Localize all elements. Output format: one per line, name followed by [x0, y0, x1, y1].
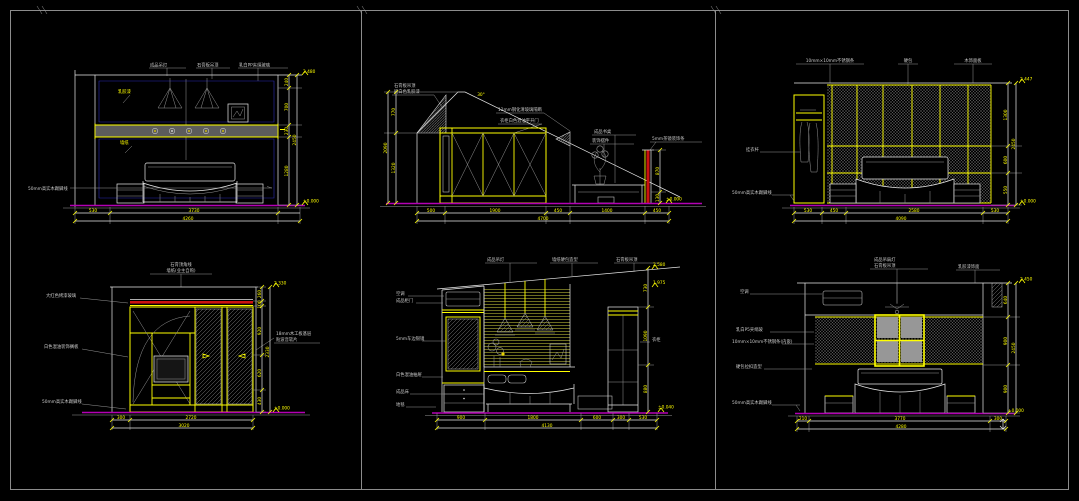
dim-total: 4130 [542, 423, 553, 429]
annotation: 衣柜 [652, 336, 661, 343]
elevation-2: 石膏板吊顶 刷白色乳胶漆 30° 12mm钢化清玻璃隔断 衣柜白色混油平开门 成… [365, 10, 710, 255]
annotation: 衣柜白色混油平开门 [500, 117, 539, 124]
annotation: 12mm钢化清玻璃隔断 [498, 106, 543, 113]
cad-canvas: { "window": { "background": "#000000", "… [0, 0, 1079, 501]
p4-bottom-dimension-chain: 300 2720 3020 [110, 415, 255, 430]
dim-value: 260 [257, 290, 263, 298]
annotation: 地毯 [396, 401, 405, 408]
elevation-marker: ±0.000 [274, 406, 290, 412]
p1-wall: 乳胶漆 墙纸 [75, 70, 302, 207]
dim-value: 100 [257, 300, 263, 308]
annotation: 乳胶漆饰面 [958, 263, 980, 270]
dim-value: 620 [257, 369, 263, 377]
dim-value: 2720 [186, 415, 197, 421]
annotation: 墙纸 [120, 139, 129, 146]
p6-bed [855, 369, 945, 413]
p2-wardrobe [440, 128, 546, 203]
dim-value: 1400 [602, 208, 613, 214]
dim-value: 2580 [909, 208, 920, 214]
dim-total: 2330 [265, 346, 271, 357]
dim-total: 2450 [1011, 342, 1017, 353]
p3-leader-labels: 10mm×10mm不锈钢条 硬包 木饰面板 [796, 57, 992, 84]
annotation: 硬包 [904, 57, 913, 64]
elevation-marker: ±0.000 [666, 197, 682, 203]
annotation: 乳白PP夹绢玻璃 [239, 62, 271, 69]
dim-value: 3730 [189, 208, 200, 214]
annotation: 装饰摆件 [592, 137, 610, 144]
dim-total: 2450 [292, 134, 298, 145]
dim-value: 1300 [1003, 109, 1009, 120]
dim-value: 450 [653, 208, 661, 214]
elevation-6: 成品吊扇灯 石膏板吊顶 乳胶漆饰面 空调 [720, 255, 1070, 495]
p1-bed [143, 163, 237, 202]
dim-value: 530 [804, 208, 812, 214]
dim-total: 4700 [538, 216, 549, 222]
gable-hatch [417, 95, 446, 133]
p1-right-dimension-chain: 240 700 230 1280 2450 2.480 ±0.000 [278, 69, 319, 207]
dim-total: 4090 [896, 216, 907, 222]
dim-total: 4260 [183, 216, 194, 222]
p2-right-dimension-chain: 870 130 ±0.000 [651, 148, 682, 205]
p6-right-dimension-chain: 640 900 900 2450 2.450 ±0.000 [983, 277, 1033, 430]
p6-left-labels: 空调 乳白P5夹绢玻 10mm×10mm不锈钢条(内嵌) 硬包拉扣造型 50mm… [732, 288, 822, 411]
dim-value: 1280 [284, 165, 290, 176]
annotation: 大红色烤漆玻璃 [46, 292, 77, 299]
elevation-5: 成品吊灯 墙纸硬包造型 石膏板吊顶 [365, 255, 710, 495]
annotation: 石膏板吊顶 [874, 262, 896, 269]
dim-value: 210 [799, 416, 807, 422]
elevation-marker: 2.330 [274, 281, 287, 287]
dim-value: 730 [643, 284, 649, 292]
p2-bottom-dimension-chain: 500 1900 450 1400 450 4700 [415, 206, 671, 224]
annotation: 石膏板吊顶 [394, 82, 416, 89]
dim-value: 640 [1003, 296, 1009, 304]
annotation: 50mm高实木踢脚线 [28, 185, 68, 192]
dim-value: 500 [427, 208, 435, 214]
annotation: 50mm高实木踢脚线 [732, 399, 772, 406]
elevation-1: 成品吊灯 石膏板吊顶 乳白PP夹绢玻璃 乳胶漆 墙纸 [15, 10, 360, 255]
elevation-4: 石膏顶角线 墙纸(业主自购) 大红色烤漆玻璃 白色混油装饰搁板 50mm高实木踢… [15, 255, 360, 495]
dim-value: 300 [994, 416, 1002, 422]
p1-bottom-dimension-chain: 530 3730 4260 [73, 207, 302, 224]
p2-structure [417, 92, 680, 203]
dim-value: 770 [391, 108, 397, 116]
p5-dresser-unit [442, 286, 484, 412]
dim-value: 300 [117, 415, 125, 421]
elevation-marker: 2.450 [1020, 277, 1033, 283]
dim-value: 920 [257, 327, 263, 335]
p1-skirting-label: 50mm高实木踢脚线 [28, 185, 272, 192]
dim-value: 600 [1003, 156, 1009, 164]
annotation: 5mm茶镜装饰条 [652, 135, 685, 142]
red-glass-strip [130, 301, 253, 304]
dim-value: 900 [1003, 337, 1009, 345]
dim-value: 530 [89, 208, 97, 214]
p4-right-dimension-chain: 260 100 920 620 430 2330 2.330 ±0.000 [253, 281, 290, 415]
p2-mirror-strip [642, 150, 654, 203]
dim-value: 900 [1003, 385, 1009, 393]
p1-spotlight-shelf [95, 124, 285, 140]
bench [578, 396, 612, 409]
dim-total: 2450 [1011, 138, 1017, 149]
p4-sliding-doors [196, 309, 252, 404]
p6-leader-labels: 成品吊扇灯 石膏板吊顶 乳胶漆饰面 [870, 256, 1000, 303]
ceiling-fan-lamp [885, 283, 909, 309]
dim-value: 900 [457, 415, 465, 421]
dim-value: 600 [593, 415, 601, 421]
elevation-marker: ±0.000 [303, 199, 319, 205]
p1-pendant-lamps [158, 78, 219, 108]
elevation-3: 10mm×10mm不锈钢条 硬包 木饰面板 挂衣杆 50mm高实木踢脚线 [720, 10, 1070, 255]
dim-value: 130 [655, 194, 661, 202]
annotation: 挂衣杆 [746, 146, 760, 153]
annotation: 墙纸硬包造型 [552, 256, 578, 263]
dim-value: 450 [554, 208, 562, 214]
annotation: 50mm高实木踢脚线 [732, 189, 772, 196]
hanging-clothes [800, 110, 818, 172]
dim-value: 1900 [490, 208, 501, 214]
annotation: 成品吊灯 [487, 256, 505, 263]
dim-value: 870 [655, 167, 661, 175]
annotation: 木饰面板 [964, 57, 982, 64]
annotation: 成品书桌 [594, 128, 612, 135]
annotation: 成品吊灯 [150, 62, 168, 69]
dim-total: 3020 [179, 423, 190, 429]
dim-value: 230 [284, 127, 290, 135]
elevation-marker: 1.975 [653, 280, 666, 286]
dim-total: 4280 [896, 424, 907, 430]
p4-left-labels: 大红色烤漆玻璃 白色混油装饰搁板 50mm高实木踢脚线 [42, 292, 128, 409]
p4-leader-labels: 石膏顶角线 墙纸(业主自购) [150, 261, 212, 287]
annotation: 成品吊扇灯 [874, 256, 896, 263]
dim-value: 240 [284, 78, 290, 86]
p1-picture-frame [228, 104, 248, 122]
dim-value: 550 [1003, 186, 1009, 194]
dim-value: 1800 [528, 415, 539, 421]
annotation: 石膏板吊顶 [616, 256, 638, 263]
annotation: 石膏顶角线 [170, 261, 192, 268]
annotation: 5mm车边银镜 [396, 335, 425, 342]
p3-left-labels: 挂衣杆 50mm高实木踢脚线 [732, 146, 800, 201]
dim-value: 880 [643, 385, 649, 393]
elevation-marker: 2.580 [653, 262, 666, 268]
p3-wardrobe [794, 95, 824, 203]
annotation: 18mm木工板基层 [276, 330, 312, 337]
mirror [448, 319, 478, 369]
dim-value: 530 [991, 208, 999, 214]
dim-value: 1090 [643, 330, 649, 341]
tv [154, 356, 188, 382]
p2-glass-partition [556, 131, 570, 203]
p3-right-dimension-chain: 1300 600 550 2450 2.447 ±0.000 [991, 77, 1036, 208]
annotation: 墙纸(业主自购) [166, 267, 195, 274]
annotation: 白色混油装饰搁板 [44, 343, 79, 350]
p5-bed [484, 372, 612, 413]
hatched-pier [992, 283, 1002, 307]
annotation: 成品柜门 [396, 297, 413, 304]
annotation: 石膏板吊顶 [197, 62, 219, 69]
annotation: 50mm高实木踢脚线 [42, 398, 82, 405]
p2-left-dimension-chain: 770 1320 2090 [383, 90, 458, 205]
annotation: 空调 [740, 288, 749, 295]
dim-value: 1320 [391, 162, 397, 173]
dim-value: 3770 [895, 416, 906, 422]
p3-bottom-dimension-chain: 530 450 2580 530 4090 [792, 207, 1010, 224]
annotation: 乳胶漆 [118, 88, 132, 95]
annotation: 空调 [396, 290, 405, 297]
dim-value: 700 [284, 103, 290, 111]
p6-center-window [875, 315, 924, 366]
annotation: 成品床 [396, 388, 410, 395]
p5-wardrobe-cabinet [608, 307, 638, 412]
dim-value: 450 [830, 208, 838, 214]
slope-label: 30° [477, 92, 485, 98]
elevation-marker: 2.480 [303, 69, 316, 75]
dim-value: 530 [639, 415, 647, 421]
elevation-marker: 2.447 [1020, 77, 1033, 83]
elevation-marker: ±0.000 [1020, 199, 1036, 205]
annotation: 白色混油抽屉 [396, 371, 422, 378]
p6-bottom-dimension-chain: 210 3770 300 4280 [795, 416, 1008, 432]
annotation: 10mm×10mm不锈钢条 [806, 57, 855, 64]
p5-leader-labels: 成品吊灯 墙纸硬包造型 石膏板吊顶 [485, 256, 660, 282]
annotation: 刷白色乳胶漆 [394, 88, 420, 95]
dim-total: 2090 [383, 142, 389, 153]
elevation-marker: ±0.040 [658, 405, 674, 411]
annotation: 乳白P5夹绢玻 [736, 326, 764, 333]
elevation-marker: ±0.000 [1008, 408, 1024, 414]
annotation: 贴波音软片 [276, 336, 297, 343]
dim-value: 430 [257, 397, 263, 405]
annotation: 硬包拉扣造型 [736, 363, 762, 370]
stool [598, 197, 614, 203]
dim-value: 300 [617, 415, 625, 421]
